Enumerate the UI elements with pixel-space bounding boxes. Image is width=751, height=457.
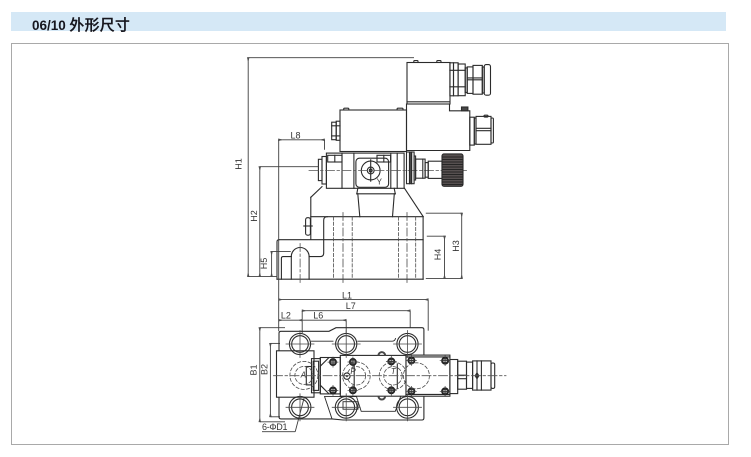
- svg-text:A: A: [300, 371, 306, 380]
- svg-text:Y: Y: [377, 178, 383, 187]
- svg-text:L1: L1: [342, 290, 352, 300]
- svg-text:H4: H4: [433, 249, 443, 261]
- svg-text:B1: B1: [249, 364, 259, 375]
- svg-text:L7: L7: [346, 301, 356, 311]
- svg-text:H5: H5: [259, 258, 269, 270]
- svg-text:L2: L2: [281, 311, 291, 321]
- svg-text:T: T: [391, 367, 397, 376]
- svg-text:H1: H1: [233, 158, 243, 170]
- svg-text:P: P: [350, 367, 356, 376]
- svg-text:H3: H3: [451, 240, 461, 252]
- svg-text:H2: H2: [249, 210, 259, 222]
- svg-text:B2: B2: [259, 364, 269, 375]
- svg-text:L8: L8: [290, 130, 300, 140]
- svg-text:L6: L6: [313, 311, 323, 321]
- svg-text:6-ΦD1: 6-ΦD1: [262, 422, 287, 432]
